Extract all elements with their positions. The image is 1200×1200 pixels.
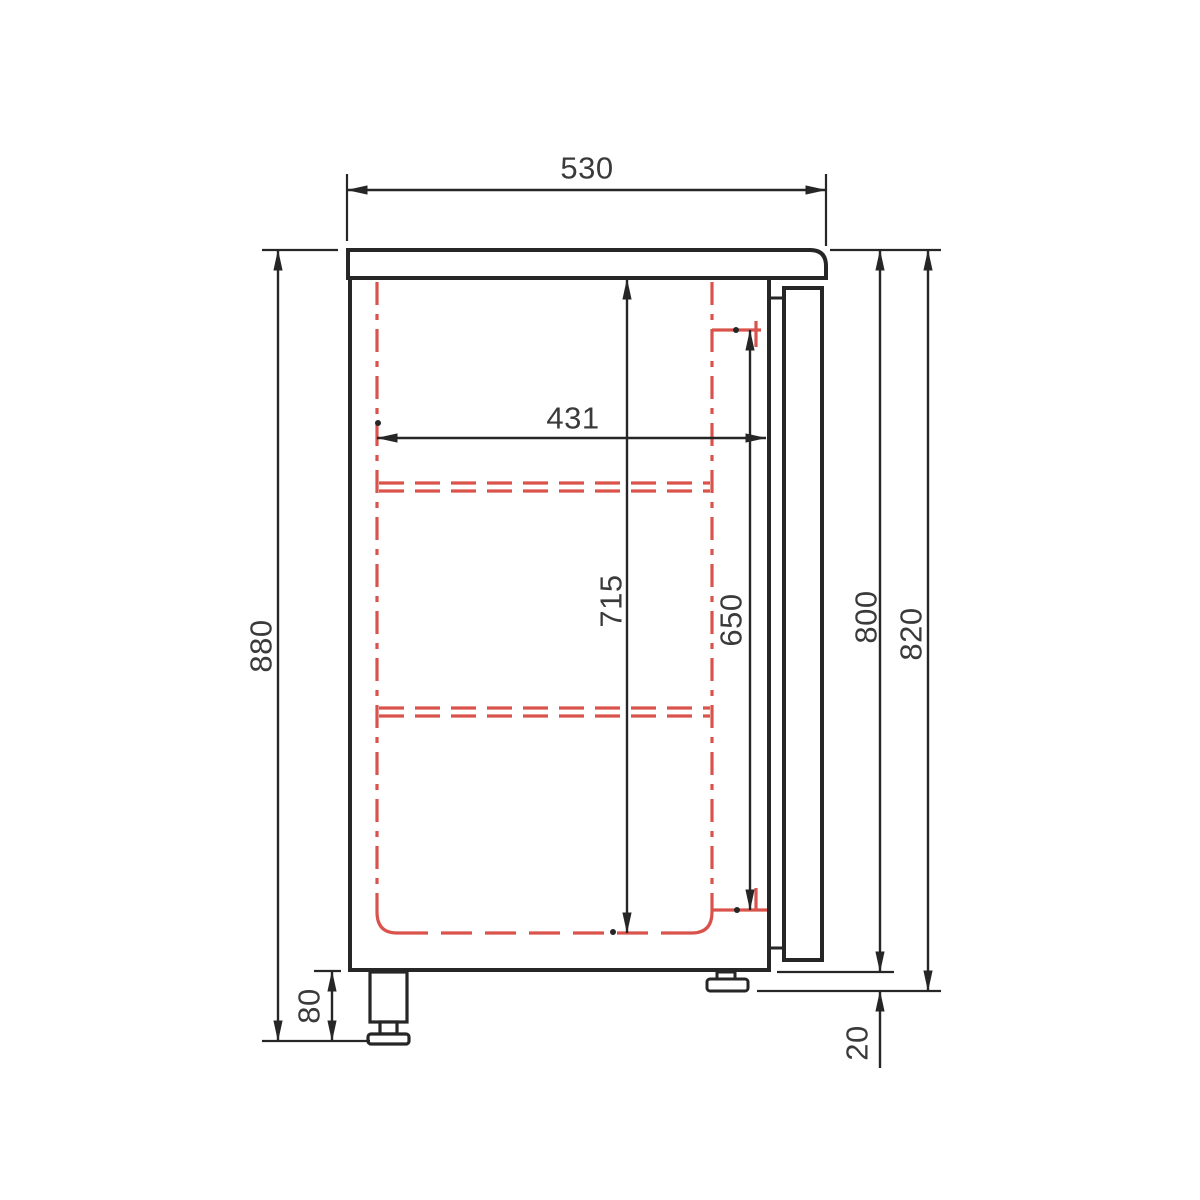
interior-bottom-right-corner xyxy=(692,912,712,933)
dimension-label-body-height: 800 xyxy=(849,590,884,643)
ref-dot-431-left xyxy=(375,420,381,426)
dimension-label-overall-height: 880 xyxy=(244,619,279,672)
cabinet-body-outline xyxy=(350,278,769,970)
castor-base xyxy=(707,979,748,991)
ref-dot-650-bottom xyxy=(734,907,740,913)
foot-stem xyxy=(370,972,407,1022)
side-section-drawing: 530 431 880 715 650 800 820 80 20 xyxy=(0,0,1200,1200)
ref-dot-650-top xyxy=(733,327,739,333)
dimension-label-castor-height: 20 xyxy=(840,1025,875,1060)
ref-dot-715-bottom xyxy=(610,929,616,935)
dimension-label-door-opening-height: 650 xyxy=(714,593,749,646)
interior-volume-outline xyxy=(377,282,712,933)
adjustable-foot-left xyxy=(368,972,409,1044)
dimension-label-top-depth: 530 xyxy=(560,151,613,186)
dimension-label-interior-height: 715 xyxy=(594,574,629,627)
foot-neck xyxy=(380,1022,397,1034)
door-panel xyxy=(784,288,822,960)
foot-base xyxy=(368,1034,409,1044)
dimension-label-foot-height: 80 xyxy=(292,988,327,1023)
shelf-level-2 xyxy=(379,708,710,716)
castor-foot-right xyxy=(707,972,748,991)
interior-bottom-left-corner xyxy=(377,912,397,933)
technical-drawing-canvas: 530 431 880 715 650 800 820 80 20 xyxy=(0,0,1200,1200)
shelf-level-1 xyxy=(379,483,710,491)
countertop-panel xyxy=(348,250,826,278)
dimension-label-height-with-castor: 820 xyxy=(894,607,929,660)
dimension-label-interior-depth: 431 xyxy=(546,401,599,436)
